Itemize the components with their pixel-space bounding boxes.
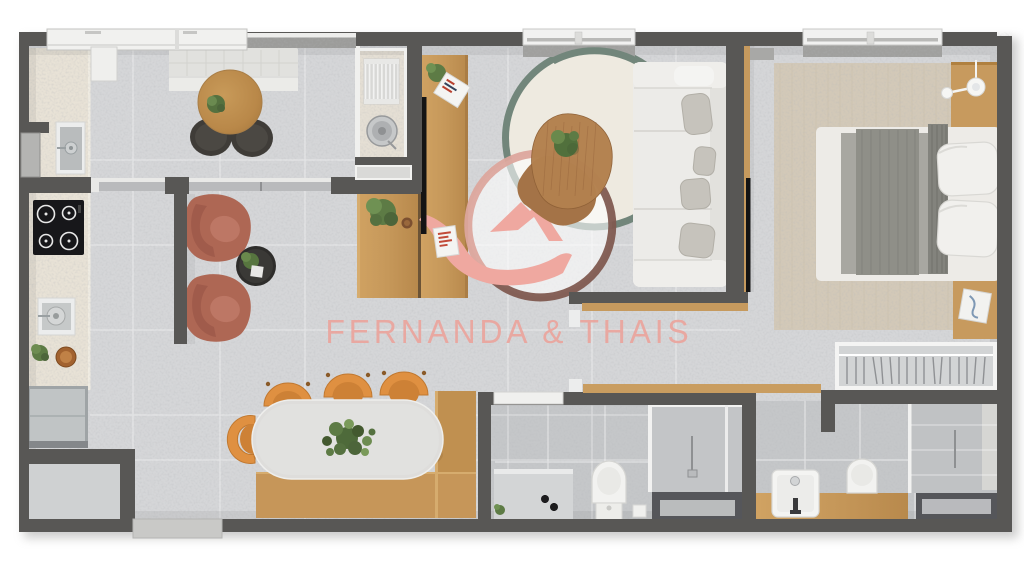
- svg-text:FERNANDA & THAIS: FERNANDA & THAIS: [326, 313, 693, 350]
